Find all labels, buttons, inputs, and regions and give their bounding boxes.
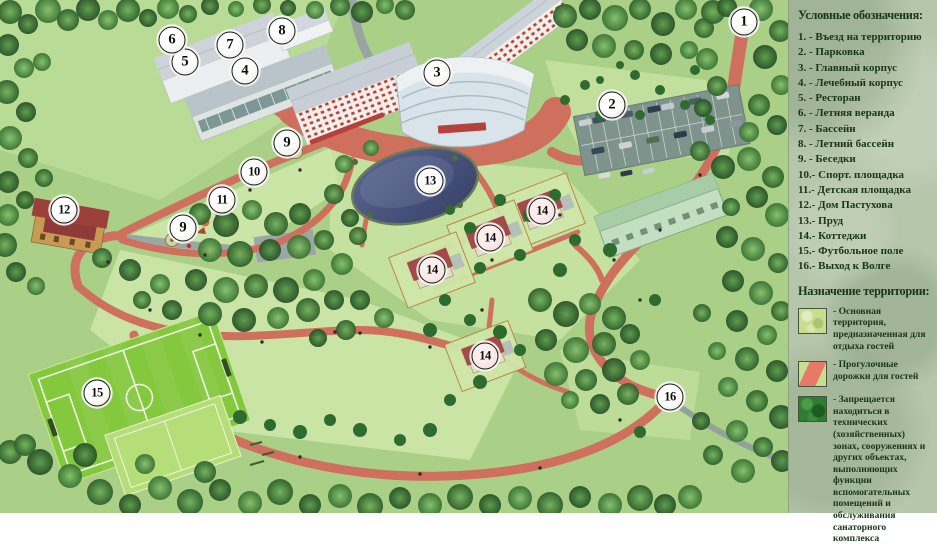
- map-marker-9: 9: [274, 130, 301, 157]
- territory-entry-label: - Запрещается находиться в технических (…: [833, 394, 932, 545]
- map-marker-11: 11: [209, 187, 236, 214]
- map-marker-12: 12: [51, 197, 78, 224]
- legend-item-12: 12.- Дом Пастухова: [798, 198, 932, 213]
- map-marker-14: 14: [529, 198, 556, 225]
- walking-paths-swatch: [798, 361, 827, 387]
- legend-title: Условные обозначения:: [798, 8, 932, 23]
- territory-entry-restricted-zones: - Запрещается находиться в технических (…: [798, 394, 932, 545]
- legend-item-13: 13.- Пруд: [798, 214, 932, 229]
- marker-layer: 123456789101191213141414141516: [0, 0, 788, 513]
- sanatorium-site-plan: 123456789101191213141414141516 Условные …: [0, 0, 937, 513]
- territory-entry-walking-paths: - Прогулочные дорожки для гостей: [798, 359, 932, 387]
- territory-entry-label: - Основная территория, предназначенная д…: [833, 306, 932, 352]
- territory-entry-main-territory: - Основная территория, предназначенная д…: [798, 306, 932, 352]
- legend-item-4: 4. - Лечебный корпус: [798, 76, 932, 91]
- map-marker-9-2: 9: [170, 215, 197, 242]
- map-marker-16: 16: [657, 384, 684, 411]
- legend-item-10: 10.- Спорт. площадка: [798, 168, 932, 183]
- legend-panel: Условные обозначения: 1. - Въезд на терр…: [788, 0, 937, 513]
- legend-item-11: 11.- Детская площадка: [798, 183, 932, 198]
- legend-item-8: 8. - Летний бассейн: [798, 137, 932, 152]
- map-marker-3: 3: [424, 60, 451, 87]
- legend-items: 1. - Въезд на территорию2. - Парковка3. …: [798, 30, 932, 275]
- map-marker-6: 6: [159, 27, 186, 54]
- map-marker-4: 4: [232, 58, 259, 85]
- map-marker-1: 1: [731, 9, 758, 36]
- map-marker-14-4: 14: [472, 343, 499, 370]
- territory-entries: - Основная территория, предназначенная д…: [798, 306, 932, 545]
- map-area: 123456789101191213141414141516: [0, 0, 788, 513]
- territory-entry-label: - Прогулочные дорожки для гостей: [833, 359, 932, 387]
- legend-item-2: 2. - Парковка: [798, 45, 932, 60]
- legend-item-6: 6. - Летняя веранда: [798, 106, 932, 121]
- legend-item-15: 15.- Футбольное поле: [798, 244, 932, 259]
- legend-item-9: 9. - Беседки: [798, 152, 932, 167]
- legend-item-16: 16.- Выход к Волге: [798, 259, 932, 274]
- legend-item-3: 3. - Главный корпус: [798, 61, 932, 76]
- map-marker-8: 8: [269, 18, 296, 45]
- territory-title: Назначение территории:: [798, 284, 932, 299]
- map-marker-7: 7: [217, 32, 244, 59]
- legend-item-5: 5. - Ресторан: [798, 91, 932, 106]
- map-marker-14-2: 14: [477, 225, 504, 252]
- map-marker-13: 13: [417, 168, 444, 195]
- legend-item-7: 7. - Бассейн: [798, 122, 932, 137]
- legend-item-1: 1. - Въезд на территорию: [798, 30, 932, 45]
- map-marker-10: 10: [241, 159, 268, 186]
- map-marker-2: 2: [599, 92, 626, 119]
- map-marker-15: 15: [84, 380, 111, 407]
- legend-item-14: 14.- Коттеджи: [798, 229, 932, 244]
- map-marker-14-3: 14: [419, 257, 446, 284]
- restricted-zones-swatch: [798, 396, 827, 422]
- main-territory-swatch: [798, 308, 827, 334]
